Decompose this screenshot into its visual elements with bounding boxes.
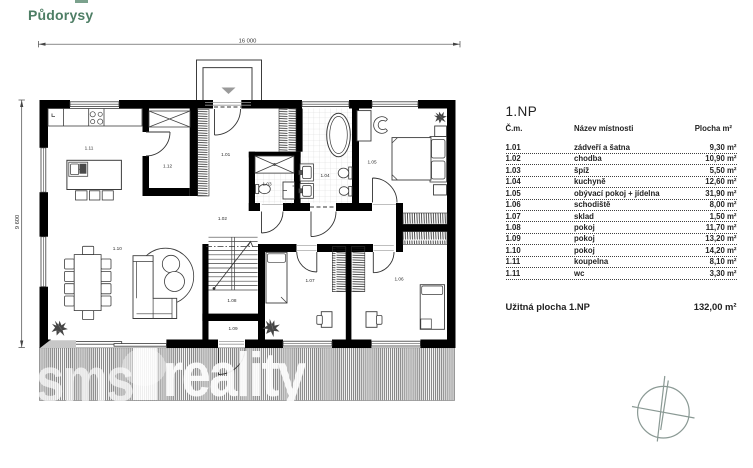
svg-text:1.08: 1.08	[227, 298, 237, 303]
svg-text:1.05: 1.05	[367, 160, 377, 165]
svg-text:1.04: 1.04	[320, 173, 330, 178]
svg-text:1.01: 1.01	[221, 152, 231, 157]
svg-text:1.12: 1.12	[163, 164, 173, 169]
svg-text:1.11: 1.11	[85, 146, 94, 151]
svg-text:1.10: 1.10	[113, 246, 123, 251]
svg-text:16 000: 16 000	[239, 39, 257, 45]
svg-text:1.03: 1.03	[262, 182, 272, 187]
svg-text:1.07: 1.07	[305, 278, 315, 283]
svg-text:1.09: 1.09	[228, 326, 238, 331]
svg-text:9 600: 9 600	[15, 215, 21, 230]
svg-text:1.02: 1.02	[218, 216, 228, 221]
svg-text:1.06: 1.06	[394, 277, 404, 282]
